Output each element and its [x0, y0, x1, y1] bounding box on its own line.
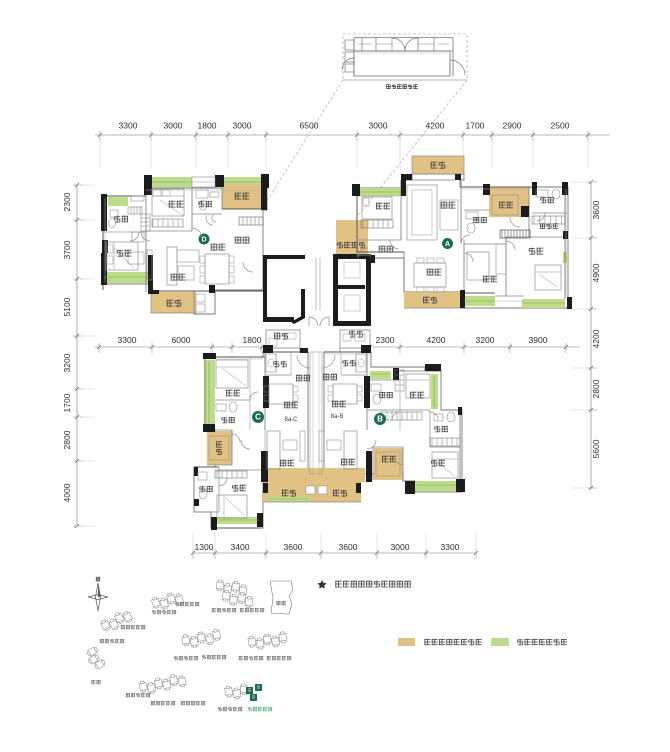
svg-text:3600: 3600	[339, 542, 358, 552]
svg-text:3200: 3200	[476, 335, 495, 345]
svg-text:2900: 2900	[503, 121, 522, 131]
svg-text:1700: 1700	[466, 121, 485, 131]
svg-text:3300: 3300	[441, 542, 460, 552]
svg-text:B: B	[377, 415, 383, 424]
svg-text:2800: 2800	[591, 379, 601, 398]
svg-text:3900: 3900	[529, 335, 548, 345]
svg-text:1800: 1800	[243, 335, 262, 345]
svg-text:3300: 3300	[119, 121, 138, 131]
svg-text:3000: 3000	[391, 542, 410, 552]
svg-text:5100: 5100	[62, 297, 72, 316]
svg-text:2300: 2300	[376, 335, 395, 345]
svg-text:8a-B: 8a-B	[331, 414, 344, 420]
svg-text:3200: 3200	[62, 353, 72, 372]
svg-text:3000: 3000	[164, 121, 183, 131]
svg-text:4900: 4900	[591, 263, 601, 282]
svg-text:5600: 5600	[591, 439, 601, 458]
svg-text:1800: 1800	[198, 121, 217, 131]
svg-text:3600: 3600	[591, 200, 601, 219]
svg-text:3000: 3000	[369, 121, 388, 131]
svg-text:4200: 4200	[427, 335, 446, 345]
svg-text:3700: 3700	[62, 240, 72, 259]
svg-text:4200: 4200	[591, 329, 601, 348]
svg-text:1300: 1300	[195, 542, 214, 552]
svg-text:6500: 6500	[300, 121, 319, 131]
svg-text:3000: 3000	[233, 121, 252, 131]
svg-text:6000: 6000	[172, 335, 191, 345]
svg-text:A: A	[445, 241, 450, 248]
svg-text:2500: 2500	[551, 121, 570, 131]
svg-text:C: C	[255, 413, 261, 422]
svg-text:2300: 2300	[62, 192, 72, 211]
svg-text:3400: 3400	[231, 542, 250, 552]
svg-text:4000: 4000	[62, 483, 72, 502]
svg-text:3600: 3600	[284, 542, 303, 552]
svg-text:3300: 3300	[118, 335, 137, 345]
svg-text:1700: 1700	[62, 393, 72, 412]
svg-text:4200: 4200	[426, 121, 445, 131]
svg-text:2800: 2800	[62, 430, 72, 449]
svg-text:8a-C: 8a-C	[284, 417, 298, 423]
